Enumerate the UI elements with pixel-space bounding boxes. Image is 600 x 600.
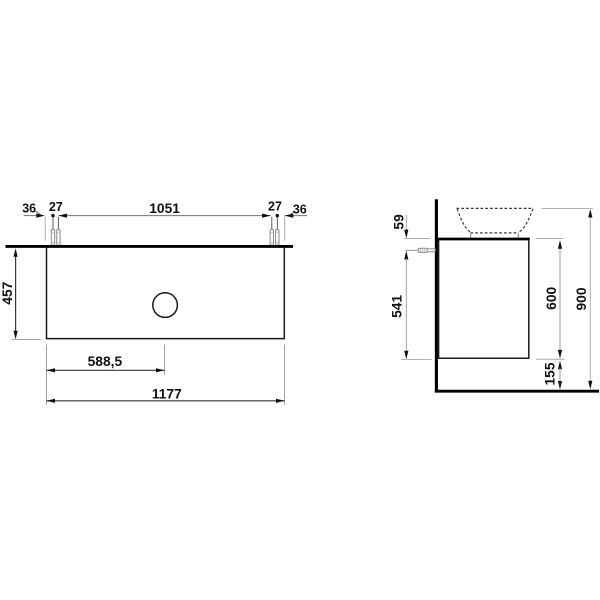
svg-text:36: 36 [293, 202, 307, 216]
svg-text:541: 541 [389, 295, 404, 318]
svg-text:1051: 1051 [149, 201, 180, 216]
svg-text:27: 27 [268, 200, 282, 214]
svg-text:59: 59 [392, 214, 407, 230]
svg-text:36: 36 [22, 202, 36, 216]
svg-text:457: 457 [0, 281, 15, 304]
svg-text:600: 600 [544, 286, 559, 309]
svg-text:155: 155 [542, 362, 557, 385]
svg-text:27: 27 [49, 200, 63, 214]
svg-text:900: 900 [574, 287, 589, 310]
svg-text:1177: 1177 [152, 386, 182, 401]
svg-text:588,5: 588,5 [88, 354, 123, 369]
